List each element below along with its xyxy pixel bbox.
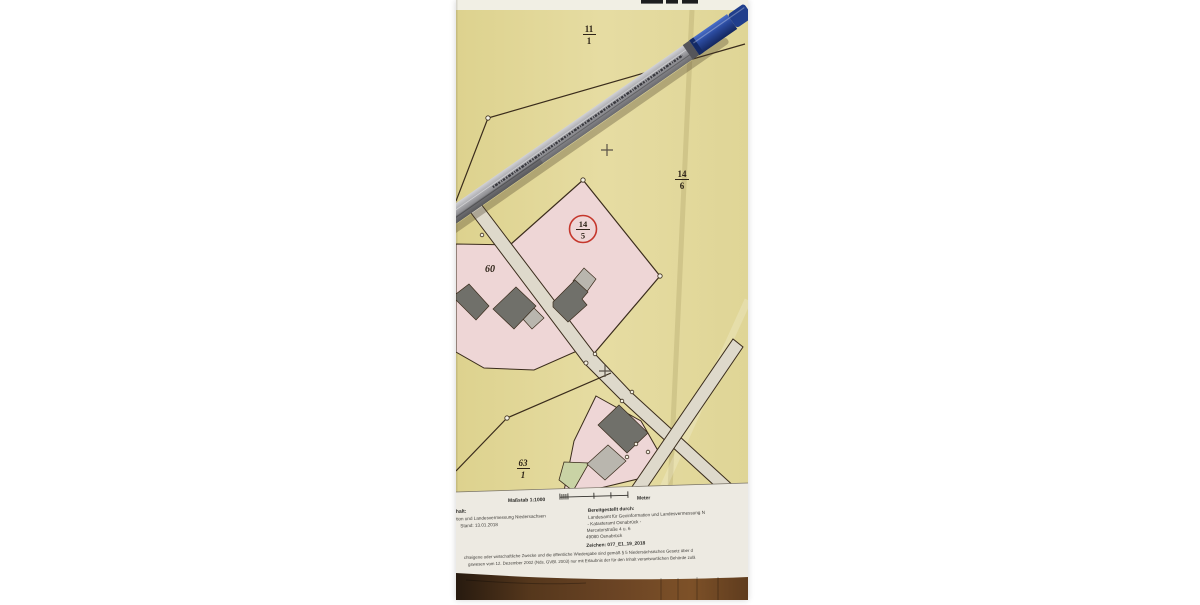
cadastral-map-photo: 11 1 14 6 14 5 60 63 1 [456,0,748,600]
page-background: 11 1 14 6 14 5 60 63 1 [0,0,1200,600]
svg-text:63: 63 [519,458,529,468]
svg-text:14: 14 [678,169,688,179]
svg-text:5: 5 [581,231,585,241]
footer-left-line1: halt: [456,509,467,515]
paper-top-margin [456,0,748,10]
svg-text:1: 1 [521,470,526,480]
scale-label: Maßstab 1:1000 [508,497,546,504]
svg-text:14: 14 [579,219,588,229]
svg-text:11: 11 [585,24,594,34]
truncated-header-text [641,0,698,4]
map-photo-container: 11 1 14 6 14 5 60 63 1 [456,0,748,600]
parcel-label-60: 60 [485,264,495,275]
scale-unit-label: Meter [637,495,651,501]
svg-text:1: 1 [587,36,592,46]
svg-text:6: 6 [680,181,685,191]
